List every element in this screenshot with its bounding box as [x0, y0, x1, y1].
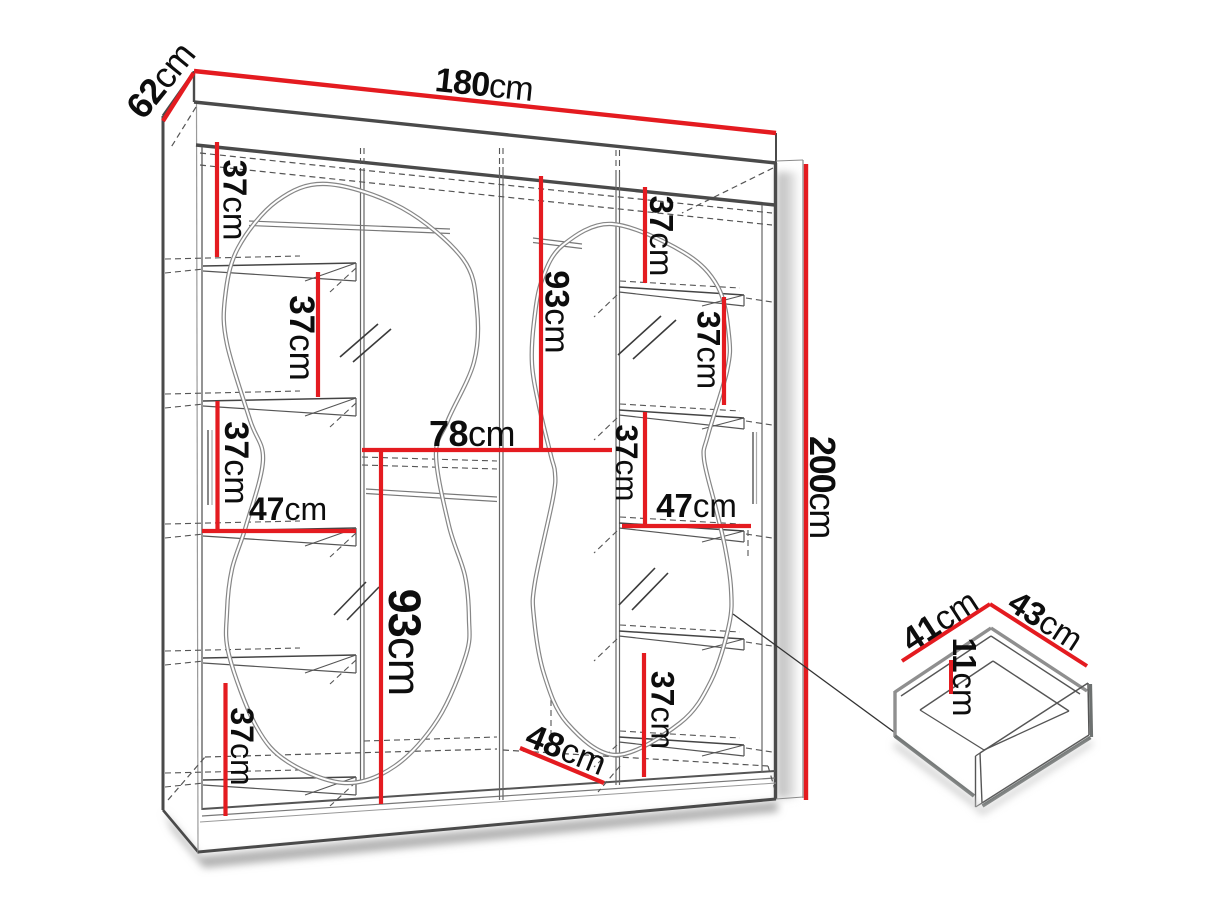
svg-text:47cm: 47cm: [656, 487, 737, 524]
svg-text:37cm: 37cm: [217, 160, 254, 241]
svg-text:37cm: 37cm: [645, 671, 681, 749]
svg-text:37cm: 37cm: [224, 707, 260, 785]
svg-text:37cm: 37cm: [609, 424, 645, 501]
svg-text:37cm: 37cm: [691, 311, 727, 389]
svg-text:78cm: 78cm: [429, 413, 515, 454]
svg-text:11cm: 11cm: [947, 638, 984, 717]
svg-text:200cm: 200cm: [803, 436, 844, 538]
svg-text:93cm: 93cm: [538, 270, 576, 353]
svg-text:37cm: 37cm: [644, 196, 681, 277]
svg-text:37cm: 37cm: [283, 295, 322, 381]
svg-text:93cm: 93cm: [380, 589, 431, 696]
svg-text:47cm: 47cm: [249, 491, 327, 527]
